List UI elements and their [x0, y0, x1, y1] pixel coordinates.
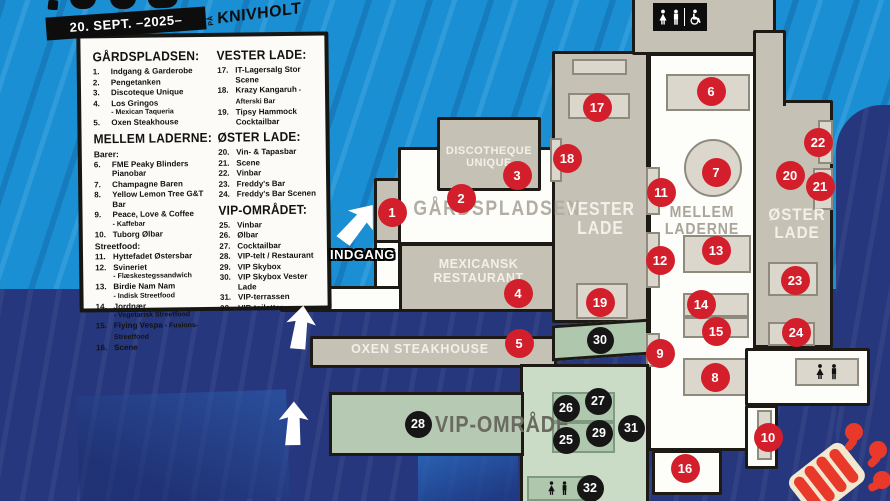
legend-item-20: 20.Vin- & Tapasbar	[218, 147, 318, 158]
map-marker-14: 14	[687, 290, 716, 319]
legend-item-text: VIP-terrassen	[238, 292, 290, 302]
legend-item-15: 15.Flying Vespa - Fusions-Streetfood	[96, 320, 214, 342]
legend-item-number: 18.	[217, 86, 232, 107]
legend-item-text: FME Peaky Blinders Pianobar	[112, 158, 212, 178]
legend-item-1: 1.Indgang & Garderobe	[93, 66, 211, 77]
legend-item-text: Vinbar	[236, 168, 261, 178]
legend-item-number: 4.	[93, 99, 108, 109]
legend-item-number: 5.	[93, 118, 108, 128]
map-marker-24: 24	[782, 318, 811, 347]
venue-prefix: PÅ	[207, 15, 215, 26]
legend-item-28: 28.VIP-telt / Restaurant	[219, 251, 319, 262]
legend-item-number: 25.	[219, 220, 234, 230]
map-marker-28: 28	[405, 411, 432, 438]
map-marker-25: 25	[553, 427, 580, 454]
legend-group-label: Barer:	[94, 147, 212, 158]
legend-item-31: 31.VIP-terrassen	[220, 292, 320, 303]
legend-item-text: Cocktailbar	[237, 241, 281, 251]
map-marker-15: 15	[702, 317, 731, 346]
map-marker-5: 5	[505, 329, 534, 358]
legend-item-number: 11.	[95, 252, 110, 262]
map-marker-10: 10	[754, 423, 783, 452]
legend-item-text: Los Gringos	[111, 98, 158, 108]
legend-item-text: VIP Skybox	[238, 262, 282, 272]
map-marker-30: 30	[587, 327, 614, 354]
legend-item-11: 11.Hyttefadet Østersbar	[95, 251, 213, 262]
fist-graphic	[778, 420, 890, 501]
legend-item-18: 18.Krazy Kangaruh - Afterski Bar	[217, 85, 317, 107]
legend-item-16: 16.Scene	[96, 342, 214, 353]
legend-item-text: Discoteque Unique	[111, 87, 184, 97]
legend-item-text: Scene	[114, 343, 138, 353]
legend-item-number: 14.	[96, 302, 111, 312]
legend-item-7: 7.Champagne Baren	[94, 178, 212, 189]
legend-item-text: VIP-toiletter	[238, 303, 283, 313]
legend-item-4: 4.Los Gringos	[93, 97, 211, 108]
legend-item-text: Champagne Baren	[112, 179, 183, 189]
legend-section-title: VIP-OMRÅDET:	[219, 201, 311, 217]
legend-group-label: Streetfood:	[95, 240, 213, 251]
legend-item-number: 27.	[219, 241, 234, 251]
legend-column-1: GÅRDSPLADSEN:1.Indgang & Garderobe2.Peng…	[92, 45, 213, 302]
legend-item-number: 23.	[219, 179, 234, 189]
legend-item-number: 29.	[220, 262, 235, 272]
legend-item-number: 19.	[218, 108, 233, 127]
legend-item-29: 29.VIP Skybox	[220, 261, 320, 272]
legend-item-5: 5.Oxen Steakhouse	[93, 117, 211, 128]
oster-lade-label: ØSTER LADE	[767, 206, 826, 243]
legend-item-subtext: - Mexican Taqueria	[111, 108, 211, 117]
legend-item-26: 26.Ølbar	[219, 230, 319, 241]
legend-item-text: Oxen Steakhouse	[111, 117, 178, 127]
legend-item-text: Tipsy Hammock Cocktailbar	[236, 107, 318, 127]
legend-item-13: 13.Birdie Nam Nam	[95, 281, 213, 292]
legend-item-number: 26.	[219, 231, 234, 241]
map-marker-7: 7	[702, 158, 731, 187]
legend-item-6: 6.FME Peaky Blinders Pianobar	[94, 158, 212, 178]
legend-item-2: 2.Pengetanken	[93, 76, 211, 87]
divider	[684, 8, 686, 26]
legend-item-number: 2.	[93, 78, 108, 88]
legend-item-text: Jordnær	[114, 301, 147, 311]
festival-map-canvas: VIP-OMRÅDE GÅRDSPLADSEN DISCOTHEQUE UNIQ…	[0, 0, 890, 501]
mellem-laderne-label: MELLEM LADERNE	[658, 204, 746, 239]
man-icon	[671, 9, 681, 26]
legend-item-12: 12.Svineriet	[95, 261, 213, 272]
legend-item-number: 16.	[96, 343, 111, 353]
map-marker-18: 18	[553, 144, 582, 173]
legend-item-text: VIP-telt / Restaurant	[237, 251, 313, 261]
legend-item-text: Svineriet	[113, 262, 147, 272]
legend-item-subtext: - Indisk Streetfood	[113, 291, 213, 300]
legend-item-25: 25.Vinbar	[219, 219, 319, 230]
legend-item-3: 3.Discoteque Unique	[93, 87, 211, 98]
legend-item-30: 30.VIP Skybox Vester Lade	[220, 272, 320, 292]
map-marker-1: 1	[378, 198, 407, 227]
up-arrow-icon	[275, 397, 313, 450]
map-marker-8: 8	[701, 363, 730, 392]
map-marker-4: 4	[504, 279, 533, 308]
map-marker-19: 19	[586, 288, 615, 317]
legend-item-text: Yellow Lemon Tree G&T Bar	[112, 189, 212, 209]
legend-item-23: 23.Freddy's Bar	[219, 178, 319, 189]
legend-item-number: 10.	[95, 230, 110, 240]
legend-section-title: MELLEM LADERNE:	[93, 130, 201, 146]
legend-item-27: 27.Cocktailbar	[219, 240, 319, 251]
legend-item-number: 21.	[218, 158, 233, 168]
legend-item-text: IT-Lagersalg Stor Scene	[235, 65, 317, 85]
legend-item-text: Freddy's Bar	[237, 179, 286, 189]
legend-item-number: 6.	[94, 160, 109, 179]
legend-item-text: Peace, Love & Coffee	[112, 209, 193, 219]
legend-item-number: 3.	[93, 88, 108, 98]
legend-item-19: 19.Tipsy Hammock Cocktailbar	[218, 107, 318, 127]
legend-item-subtext: - Afterski Bar	[236, 87, 302, 105]
legend-item-number: 24.	[219, 190, 234, 200]
legend-item-text: Tuborg Ølbar	[113, 229, 163, 239]
legend-item-number: 22.	[218, 169, 233, 179]
legend-item-number: 12.	[95, 263, 110, 273]
legend-item-text: Krazy Kangaruh - Afterski Bar	[235, 85, 317, 107]
legend-item-text: Ølbar	[237, 230, 258, 240]
legend-section-title: VESTER LADE:	[217, 47, 309, 63]
map-marker-20: 20	[776, 161, 805, 190]
legend-item-text: Vinbar	[237, 220, 262, 230]
toilet-sign-top	[653, 3, 707, 31]
map-marker-31: 31	[618, 415, 645, 442]
legend-item-number: 30.	[220, 273, 235, 292]
legend-item-8: 8.Yellow Lemon Tree G&T Bar	[94, 189, 212, 209]
legend-section-title: GÅRDSPLADSEN:	[92, 48, 200, 64]
up-arrow-icon	[280, 301, 323, 356]
map-marker-16: 16	[671, 454, 700, 483]
legend-item-number: 13.	[95, 282, 110, 292]
vester-lade-label: VESTER LADE	[561, 200, 639, 239]
date-text: 20. SEPT. –2025–	[69, 12, 183, 35]
indgang-label: INDGANG	[330, 247, 395, 262]
legend-item-number: 1.	[93, 67, 108, 77]
legend-item-text: Birdie Nam Nam	[113, 281, 175, 291]
map-marker-17: 17	[583, 93, 612, 122]
legend-item-text: Freddy's Bar Scenen	[237, 189, 316, 199]
map-marker-9: 9	[646, 339, 675, 368]
legend-item-subtext: - Fusions-Streetfood	[114, 322, 198, 341]
legend-item-number: 20.	[218, 148, 233, 158]
map-marker-26: 26	[553, 395, 580, 422]
gaardspladsen-label: GÅRDSPLADSEN	[413, 198, 542, 221]
legend-item-number: 31.	[220, 293, 235, 303]
legend-item-text: Vin- & Tapasbar	[236, 147, 296, 157]
legend-column-2: VESTER LADE:17.IT-Lagersalg Stor Scene18…	[217, 44, 320, 301]
legend-item-number: 9.	[94, 210, 109, 220]
legend-item-21: 21.Scene	[218, 157, 318, 168]
legend-item-24: 24.Freddy's Bar Scenen	[219, 189, 319, 200]
legend-item-text: Hyttefadet Østersbar	[113, 251, 192, 261]
legend-item-subtext: - Flæskestegssandwich	[113, 272, 213, 281]
legend-item-subtext: - Vegetarisk Streetfood	[114, 311, 214, 320]
map-marker-2: 2	[447, 184, 476, 213]
legend-item-subtext: - Kaffebar	[113, 219, 213, 228]
legend-section-title: ØSTER LADE:	[218, 129, 310, 145]
legend-item-text: Flying Vespa - Fusions-Streetfood	[114, 320, 214, 342]
map-marker-11: 11	[647, 178, 676, 207]
legend-item-number: 7.	[94, 180, 109, 190]
map-marker-12: 12	[646, 246, 675, 275]
legend-item-22: 22.Vinbar	[218, 168, 318, 179]
legend-item-number: 28.	[219, 252, 234, 262]
oxen-label: OXEN STEAKHOUSE	[320, 343, 520, 357]
map-marker-32: 32	[577, 475, 604, 501]
legend-box: GÅRDSPLADSEN:1.Indgang & Garderobe2.Peng…	[76, 31, 331, 312]
map-marker-29: 29	[586, 420, 613, 447]
map-marker-13: 13	[702, 236, 731, 265]
legend-item-number: 15.	[96, 321, 111, 342]
legend-item-text: Indgang & Garderobe	[111, 66, 193, 76]
legend-item-text: Scene	[236, 158, 260, 168]
map-marker-23: 23	[781, 266, 810, 295]
map-marker-21: 21	[806, 172, 835, 201]
legend-item-text: Pengetanken	[111, 77, 161, 87]
map-marker-22: 22	[804, 128, 833, 157]
map-marker-3: 3	[503, 161, 532, 190]
map-marker-6: 6	[697, 77, 726, 106]
legend-item-number: 17.	[217, 66, 232, 85]
legend-item-number: 32.	[220, 303, 235, 313]
legend-item-14: 14.Jordnær	[96, 300, 214, 311]
map-marker-27: 27	[585, 388, 612, 415]
legend-item-text: VIP Skybox Vester Lade	[238, 272, 320, 292]
legend-item-17: 17.IT-Lagersalg Stor Scene	[217, 65, 317, 85]
woman-icon	[658, 9, 668, 26]
legend-item-10: 10.Tuborg Ølbar	[95, 228, 213, 239]
legend-item-number: 8.	[94, 190, 109, 209]
wheelchair-icon	[688, 9, 702, 25]
legend-item-9: 9.Peace, Love & Coffee	[94, 209, 212, 220]
